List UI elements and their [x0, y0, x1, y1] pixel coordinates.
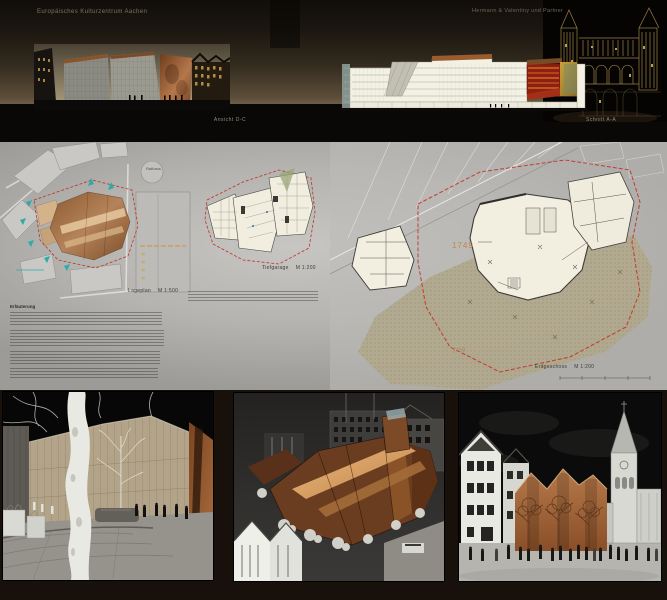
ground-floor-plan-drawing: [330, 142, 667, 390]
notes-paragraph: [10, 312, 162, 326]
gold-foyer: [560, 62, 577, 96]
notes-paragraph: [10, 330, 164, 347]
ground-plan-caption: ErdgeschossM 1:200: [535, 364, 594, 370]
header-shadow-stripe: [270, 0, 300, 48]
plaza-view-rendering: [458, 392, 662, 582]
garage-plan-drawing: [183, 148, 335, 300]
street-view-rendering: [2, 391, 214, 581]
section-drawing: [340, 52, 588, 118]
site-plan-drawing: [0, 142, 192, 302]
year-label-1759: 1759: [452, 348, 466, 355]
glass-volume-a: [64, 54, 110, 102]
basement: [350, 102, 577, 108]
site-plan-caption: LageplanM 1:500: [128, 288, 178, 294]
competition-board: Europäisches Kulturzentrum Aachen Herman…: [0, 0, 667, 600]
glass-volume-b: [110, 52, 160, 102]
notes-heading: Erläuterung: [10, 304, 35, 309]
glass-slice: [342, 64, 350, 108]
notes-paragraph: [10, 351, 160, 364]
copper-gabled-building: [515, 469, 607, 551]
year-label-1749: 1749: [452, 241, 474, 250]
notes-paragraph: [10, 368, 158, 379]
garage-plan-caption: TiefgarageM 1:200: [262, 265, 316, 271]
theater-hall: [527, 58, 562, 100]
rathaus-parcel: [136, 161, 190, 292]
copper-roof-plan: [50, 192, 130, 260]
project-title: Europäisches Kulturzentrum Aachen: [37, 9, 147, 15]
night-elevation-rendering: [34, 44, 230, 110]
copper-wall: [160, 54, 192, 102]
aerial-model-rendering: [233, 392, 445, 582]
plans-panel: Rathaus 1749 1759 LageplanM 1:500 Tiefga…: [0, 142, 667, 390]
notes-paragraph: [188, 291, 318, 302]
renderings-row: [0, 390, 667, 600]
header-band: Europäisches Kulturzentrum Aachen Herman…: [0, 0, 667, 142]
architect-name: Hermann & Valentiny und Partner: [472, 8, 563, 14]
rathaus-label: Rathaus: [146, 166, 161, 171]
section-caption: Schnitt A-A: [586, 117, 646, 123]
street-ground: [34, 100, 230, 110]
elevation-caption: Ansicht D-C: [200, 117, 260, 123]
ground-line: [340, 108, 588, 111]
